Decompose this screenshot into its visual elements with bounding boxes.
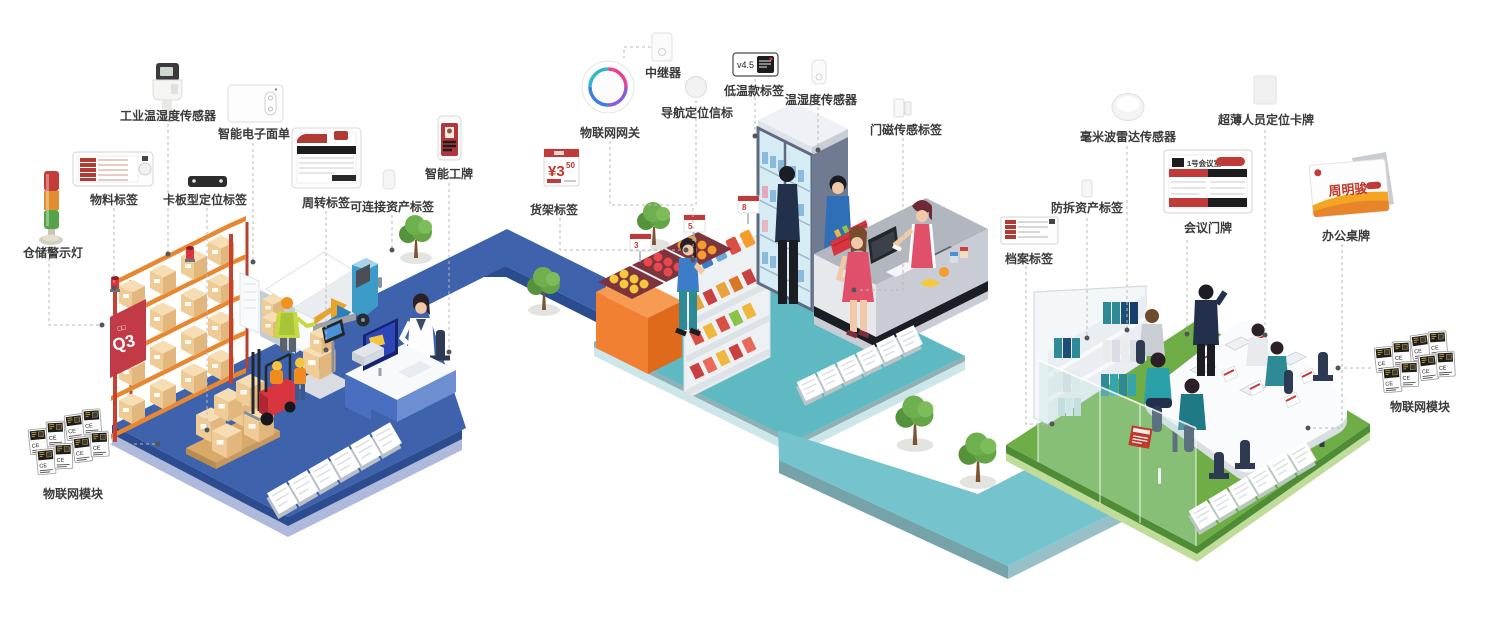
svg-text:门磁传感标签: 门磁传感标签: [870, 122, 943, 137]
svg-text:智能工牌: 智能工牌: [424, 166, 473, 181]
svg-text:v4.5: v4.5: [737, 60, 754, 70]
svg-text:货架标签: 货架标签: [530, 202, 579, 217]
svg-text:物联网模块: 物联网模块: [43, 486, 104, 501]
svg-text:导航定位信标: 导航定位信标: [661, 105, 733, 120]
svg-text:低温款标签: 低温款标签: [723, 83, 785, 98]
svg-text:5: 5: [688, 222, 693, 231]
svg-text:3: 3: [634, 241, 639, 250]
svg-text:物料标签: 物料标签: [90, 192, 139, 207]
svg-text:中继器: 中继器: [645, 65, 682, 80]
svg-text:物联网网关: 物联网网关: [580, 125, 640, 140]
svg-text:温湿度传感器: 温湿度传感器: [785, 92, 858, 107]
svg-text:智能电子面单: 智能电子面单: [217, 126, 290, 141]
svg-text:办公桌牌: 办公桌牌: [1322, 228, 1370, 243]
svg-text:50: 50: [566, 161, 575, 170]
svg-text:¥3: ¥3: [548, 163, 565, 180]
svg-text:周转标签: 周转标签: [302, 195, 351, 210]
svg-text:可连接资产标签: 可连接资产标签: [350, 199, 435, 214]
svg-text:仓储警示灯: 仓储警示灯: [22, 245, 83, 260]
svg-text:工业温湿度传感器: 工业温湿度传感器: [120, 108, 217, 123]
svg-text:物联网模块: 物联网模块: [1390, 399, 1451, 414]
svg-text:卡板型定位标签: 卡板型定位标签: [163, 192, 248, 207]
svg-text:防拆资产标签: 防拆资产标签: [1051, 200, 1124, 215]
svg-text:档案标签: 档案标签: [1005, 251, 1054, 266]
svg-text:8: 8: [742, 203, 747, 212]
svg-text:超薄人员定位卡牌: 超薄人员定位卡牌: [1217, 112, 1314, 127]
svg-text:会议门牌: 会议门牌: [1184, 220, 1232, 235]
svg-text:毫米波雷达传感器: 毫米波雷达传感器: [1080, 129, 1177, 144]
